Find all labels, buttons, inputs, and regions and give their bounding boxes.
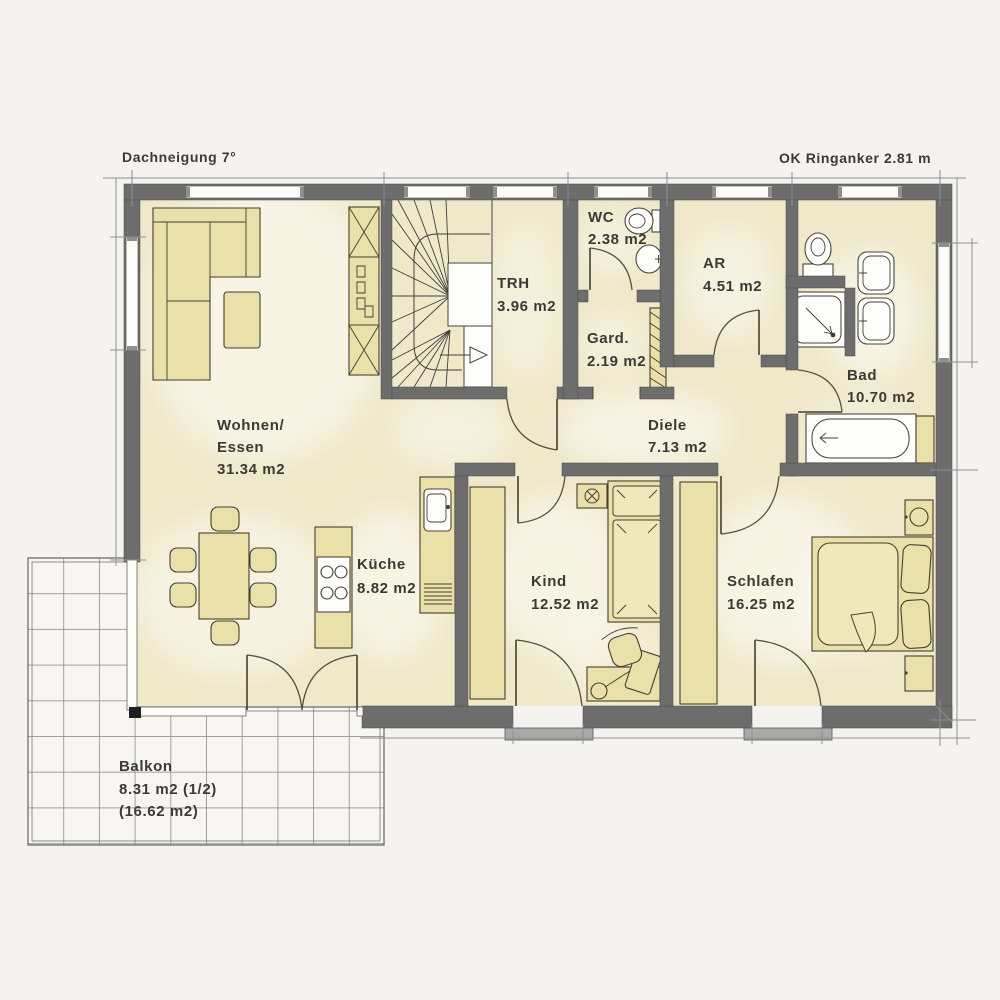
bed-double [812,537,933,652]
ring-beam-annotation: OK Ringanker 2.81 m [779,150,931,166]
shelf [349,207,379,375]
washbasin [858,252,894,294]
room-area-bad: 10.70 m2 [847,389,915,406]
room-label-gard: Gard. [587,330,629,347]
room-area-wohnen: 31.34 m2 [217,461,285,478]
nightstand [904,656,933,691]
stair-landing [464,326,492,387]
room-area-balkon-half: 8.31 m2 (1/2) [119,781,217,798]
room-area-ar: 4.51 m2 [703,278,762,295]
room-label-wc: WC [588,209,614,226]
room-area-diele: 7.13 m2 [648,439,707,456]
room-label-ar: AR [703,255,726,272]
dining-table [199,533,249,619]
roof-pitch-annotation: Dachneigung 7° [122,149,236,165]
chair [250,583,276,607]
window [712,186,772,198]
pillow [900,599,931,649]
chair [170,548,196,572]
washbasin [858,298,894,344]
floor-plan: Dachneigung 7° OK Ringanker 2.81 m Wohne… [0,0,1000,1000]
room-label-balkon: Balkon [119,758,173,775]
room-label-wohnen-line1: Wohnen/ [217,417,284,434]
chair [211,621,239,645]
window [404,186,470,198]
washbasin [636,245,662,273]
cooktop [317,557,350,612]
room-area-balkon-total: (16.62 m2) [119,803,198,820]
room-label-wohnen-line2: Essen [217,439,264,456]
window [186,186,304,198]
window [938,243,950,362]
stair-landing [448,263,492,326]
bathtub [806,414,934,463]
room-area-trh: 3.96 m2 [497,298,556,315]
chair [211,507,239,531]
room-label-diele: Diele [648,417,687,434]
wardrobe [680,482,717,704]
toilet [803,233,833,278]
window [126,237,138,350]
window [594,186,652,198]
room-area-wc: 2.38 m2 [588,231,647,248]
room-label-kueche: Küche [357,556,406,573]
room-area-kind: 12.52 m2 [531,596,599,613]
wardrobe [470,487,505,699]
chair [250,548,276,572]
room-area-kueche: 8.82 m2 [357,580,416,597]
chair [170,583,196,607]
nightstand [904,500,933,535]
bed-single [608,481,666,622]
room-label-trh: TRH [497,275,530,292]
bath-shelf [916,416,934,463]
room-label-kind: Kind [531,573,567,590]
nightstand [577,484,607,508]
pillow [900,544,931,594]
room-label-bad: Bad [847,367,877,384]
room-area-gard: 2.19 m2 [587,353,646,370]
room-label-schlafen: Schlafen [727,573,794,590]
kitchen-sink [424,489,451,531]
room-area-schlafen: 16.25 m2 [727,596,795,613]
corner-post [129,707,141,718]
window [838,186,902,198]
window [493,186,557,198]
coffee-table [224,292,260,348]
